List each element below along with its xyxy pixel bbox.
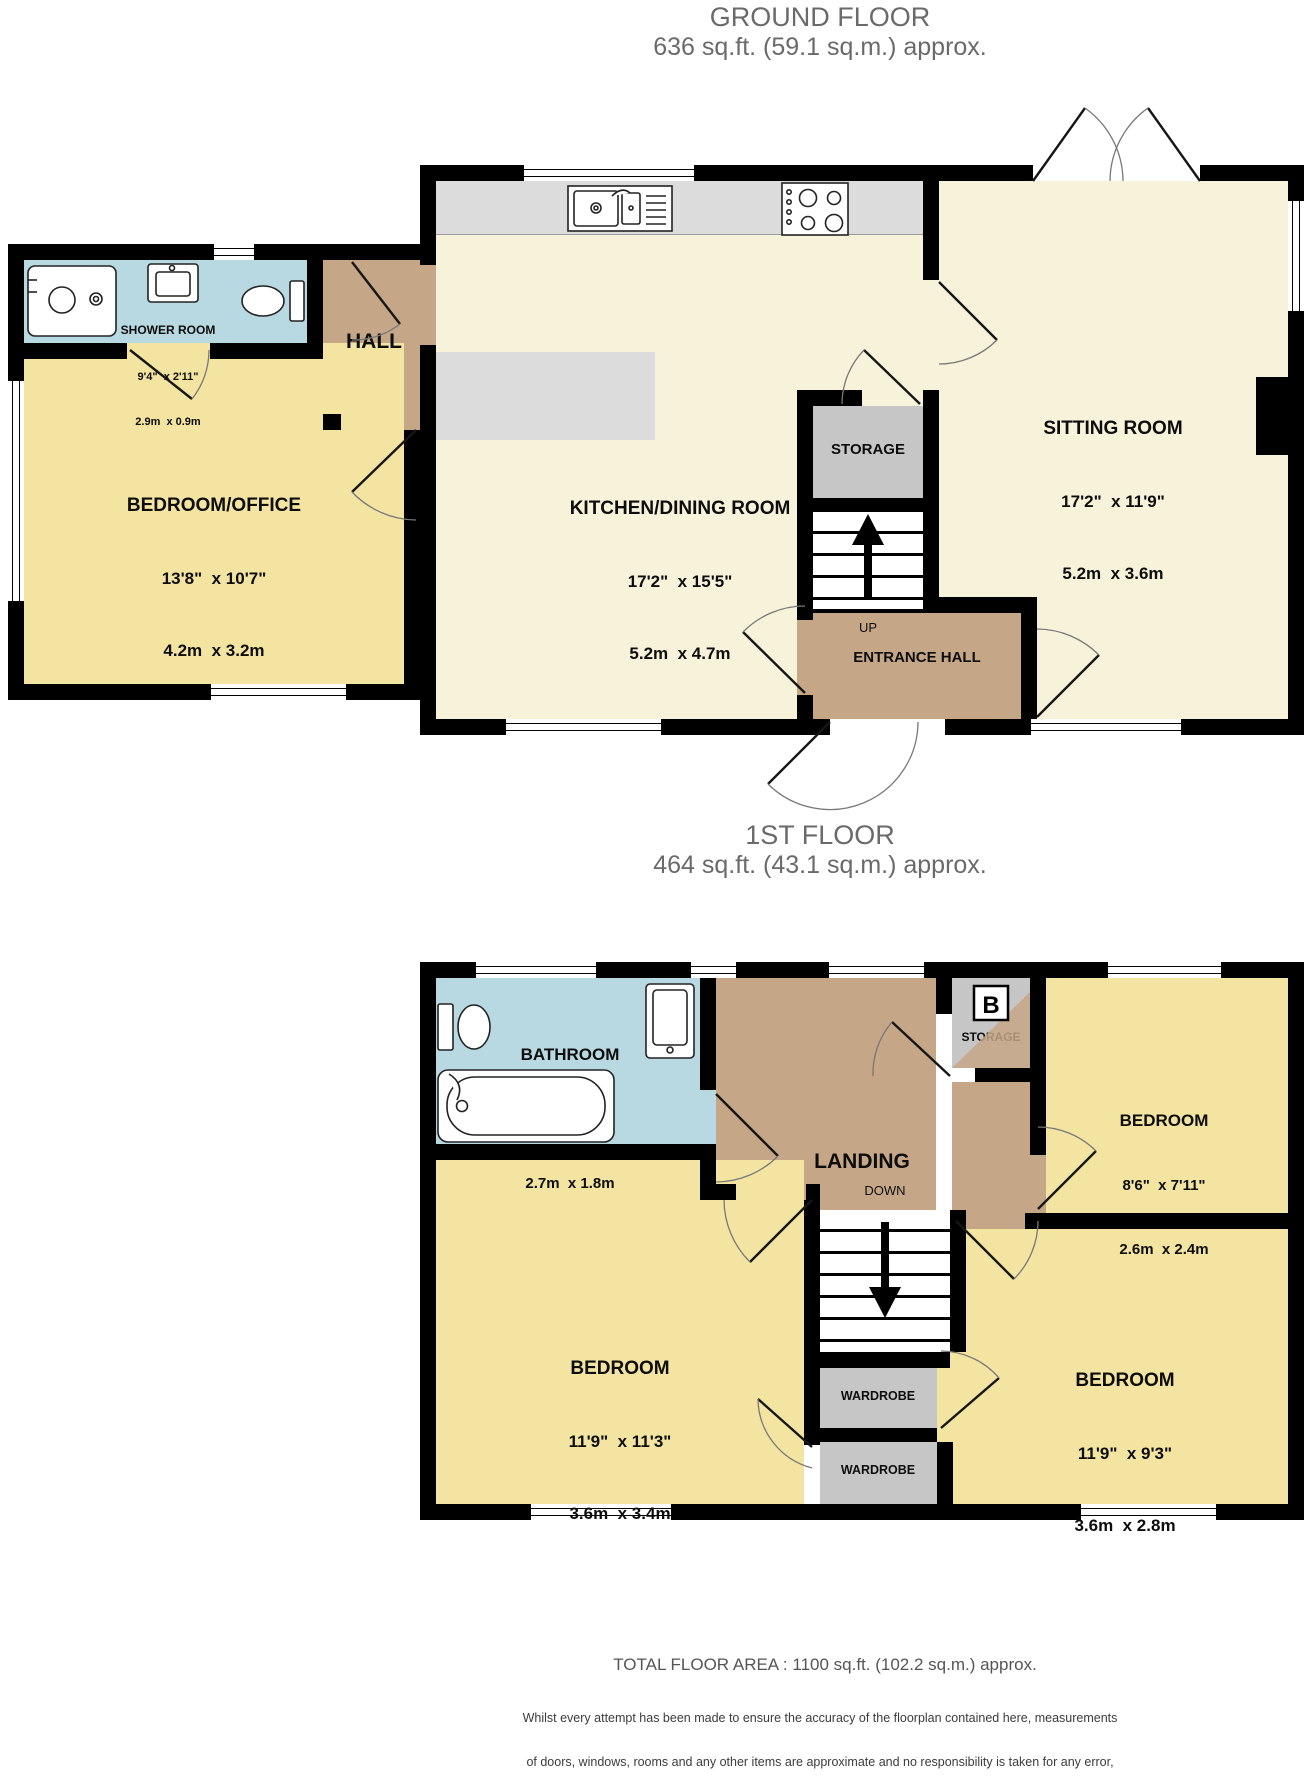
chimney-breast: [1256, 377, 1304, 455]
wall: [1288, 165, 1304, 200]
bedroom1-door-opening-floor: [1030, 1155, 1046, 1213]
wall: [8, 244, 24, 380]
wall: [1180, 719, 1304, 735]
wall: [693, 165, 1033, 181]
down-label: DOWN: [864, 1183, 905, 1200]
hall-label: HALL: [346, 328, 402, 355]
wall: [937, 1442, 953, 1520]
window: [690, 962, 737, 978]
wall: [1021, 613, 1037, 719]
wall: [936, 978, 952, 1014]
wall: [806, 1184, 820, 1200]
partition-opening-floor: [923, 280, 939, 390]
wall: [797, 695, 813, 719]
window: [1030, 719, 1182, 735]
wall: [253, 244, 436, 260]
wall: [307, 260, 323, 343]
window: [1288, 200, 1304, 312]
window: [505, 719, 662, 735]
up-label: UP: [859, 620, 877, 637]
wall: [420, 962, 436, 1520]
window: [475, 962, 597, 978]
bedroom-left-label: BEDROOM 11'9" x 11'3" 3.6m x 3.4m: [569, 1308, 672, 1574]
wall: [8, 244, 213, 260]
total-floor-area: TOTAL FLOOR AREA : 1100 sq.ft. (102.2 sq…: [613, 1655, 1037, 1675]
wall: [700, 1160, 716, 1200]
wall: [797, 390, 813, 620]
first-floor-subtitle: 464 sq.ft. (43.1 sq.m.) approx.: [653, 851, 987, 880]
bedroom-small-label: BEDROOM 8'6" x 7'11" 2.6m x 2.4m: [1119, 1066, 1208, 1304]
window: [523, 165, 695, 181]
first-floor-title: 1ST FLOOR: [745, 820, 895, 851]
hall-kitchen-opening-floor: [420, 265, 436, 345]
wall: [323, 414, 341, 430]
wall: [1030, 978, 1046, 1155]
bathroom-label: BATHROOM 8'11" x 5'11" 2.7m x 1.8m: [521, 1000, 620, 1238]
wall: [813, 498, 923, 512]
floorplan-page: GROUND FLOOR 636 sq.ft. (59.1 sq.m.) app…: [0, 0, 1316, 1787]
stairs-down: [820, 1210, 950, 1352]
wardrobe1-label: WARDROBE: [841, 1388, 915, 1404]
sitting-room-label: SITTING ROOM 17'2" x 11'9" 5.2m x 3.6m: [1043, 368, 1182, 634]
ground-floor-subtitle: 636 sq.ft. (59.1 sq.m.) approx.: [653, 33, 987, 62]
wall: [797, 390, 862, 406]
stairs-up: [813, 512, 923, 609]
wall: [950, 1210, 966, 1352]
wall: [420, 345, 436, 735]
wall: [945, 719, 1030, 735]
wall: [24, 343, 127, 359]
entrance-hall-label: ENTRANCE HALL: [853, 648, 981, 668]
landing-floor-right: [952, 1082, 1030, 1229]
wall: [975, 1068, 1030, 1082]
ground-floor-title: GROUND FLOOR: [710, 2, 931, 33]
wall: [404, 430, 420, 684]
storage-first-floor: [952, 978, 1030, 1068]
wall: [1288, 962, 1304, 1520]
wall: [716, 1184, 736, 1200]
storage-ground-label: STORAGE: [831, 440, 905, 460]
wall: [804, 1200, 820, 1445]
disclaimer: Whilst every attempt has been made to en…: [519, 1682, 1121, 1787]
wall: [595, 962, 690, 978]
wardrobe2-label: WARDROBE: [841, 1462, 915, 1478]
wall: [345, 684, 436, 700]
bathroom-door-opening-floor: [700, 1090, 716, 1144]
wall: [1288, 310, 1304, 735]
wall: [939, 597, 1037, 613]
bedroom-office-label: BEDROOM/OFFICE 13'8" x 10'7" 4.2m x 3.2m: [127, 445, 301, 711]
wall: [210, 343, 323, 359]
kitchen-dining-label: KITCHEN/DINING ROOM 17'2" x 15'5" 5.2m x…: [570, 448, 791, 714]
window: [1107, 962, 1222, 978]
wall: [923, 390, 939, 613]
storage-door-opening-floor: [862, 390, 923, 406]
window: [8, 380, 24, 602]
window: [828, 962, 925, 978]
landing-label: LANDING: [814, 1148, 910, 1175]
wall: [813, 609, 923, 613]
window: [213, 244, 255, 260]
wall: [820, 1352, 950, 1368]
wall: [670, 1504, 1080, 1520]
wall: [923, 962, 1107, 978]
wall: [660, 719, 830, 735]
wall: [820, 1428, 937, 1442]
wall: [923, 181, 939, 280]
bedroom-right-label: BEDROOM 11'9" x 9'3" 3.6m x 2.8m: [1074, 1320, 1175, 1586]
wall: [700, 978, 716, 1090]
kitchen-counter: [436, 181, 923, 235]
shower-room-label: SHOWER ROOM 9'4" x 2'11" 2.9m x 0.9m: [121, 292, 216, 461]
kitchen-gray-block: [436, 352, 655, 440]
wall: [735, 962, 828, 978]
wall: [420, 1504, 530, 1520]
storage-first-label: STORAGE: [961, 1030, 1020, 1046]
